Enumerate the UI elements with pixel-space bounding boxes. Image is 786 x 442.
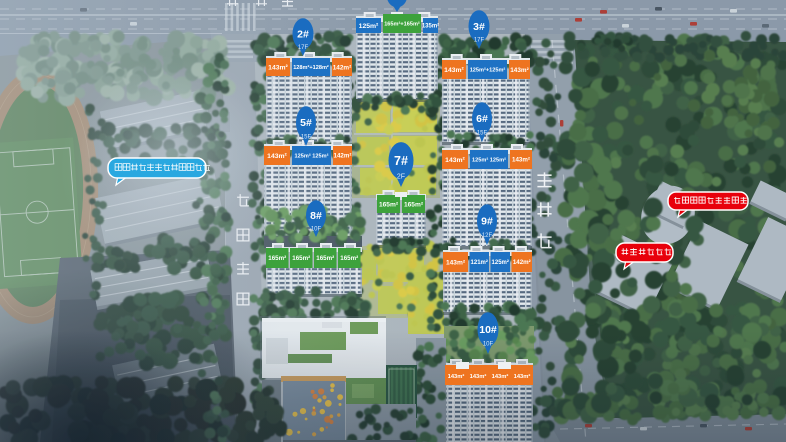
svg-text:125m²: 125m² [492,259,509,266]
svg-text:142m²: 142m² [513,259,531,266]
svg-text:165m²: 165m² [316,255,334,262]
svg-text:12F: 12F [482,233,493,239]
svg-text:143m²: 143m² [510,67,528,74]
svg-text:2#: 2# [297,28,309,40]
svg-text:143m²: 143m² [514,373,531,380]
svg-text:5#: 5# [300,117,312,129]
svg-text:143m²: 143m² [445,157,465,164]
svg-text:143m²: 143m² [267,153,287,160]
svg-text:125m² 125m²: 125m² 125m² [295,153,329,160]
svg-text:143m²: 143m² [492,373,509,380]
svg-text:10#: 10# [479,324,497,336]
svg-text:9#: 9# [481,216,493,228]
svg-text:128m²+128m²: 128m²+128m² [293,64,329,71]
svg-text:165m²: 165m² [268,255,286,262]
svg-text:125m²+125m²: 125m²+125m² [470,67,506,74]
svg-text:143m²: 143m² [512,157,530,164]
svg-text:15F: 15F [301,134,312,140]
svg-text:15F: 15F [477,130,488,136]
svg-text:10F: 10F [483,342,494,348]
svg-text:2F: 2F [397,174,405,181]
svg-text:165m²+165m²: 165m²+165m² [384,21,420,28]
svg-text:142m²: 142m² [333,64,351,71]
svg-text:143m²: 143m² [268,64,288,71]
svg-text:165m²: 165m² [379,201,399,208]
svg-text:125m² 125m²: 125m² 125m² [472,157,506,164]
svg-text:143m²: 143m² [470,373,487,380]
svg-text:165m²: 165m² [292,255,310,262]
svg-text:121m²: 121m² [471,259,488,266]
svg-text:143m²: 143m² [444,67,464,74]
svg-text:165m²: 165m² [340,255,358,262]
svg-text:142m²: 142m² [334,153,352,160]
svg-text:125m²: 125m² [359,23,379,30]
svg-text:143m²: 143m² [448,373,465,380]
svg-text:8#: 8# [310,210,322,222]
svg-text:3#: 3# [473,21,485,33]
svg-text:17F: 17F [298,45,309,51]
svg-text:6#: 6# [476,113,488,125]
svg-text:10F: 10F [311,226,322,232]
svg-text:17F: 17F [474,38,485,44]
svg-text:135m²: 135m² [422,23,439,30]
svg-text:143m²: 143m² [446,259,466,266]
svg-text:165m²: 165m² [404,201,424,208]
svg-text:7#: 7# [394,154,408,168]
